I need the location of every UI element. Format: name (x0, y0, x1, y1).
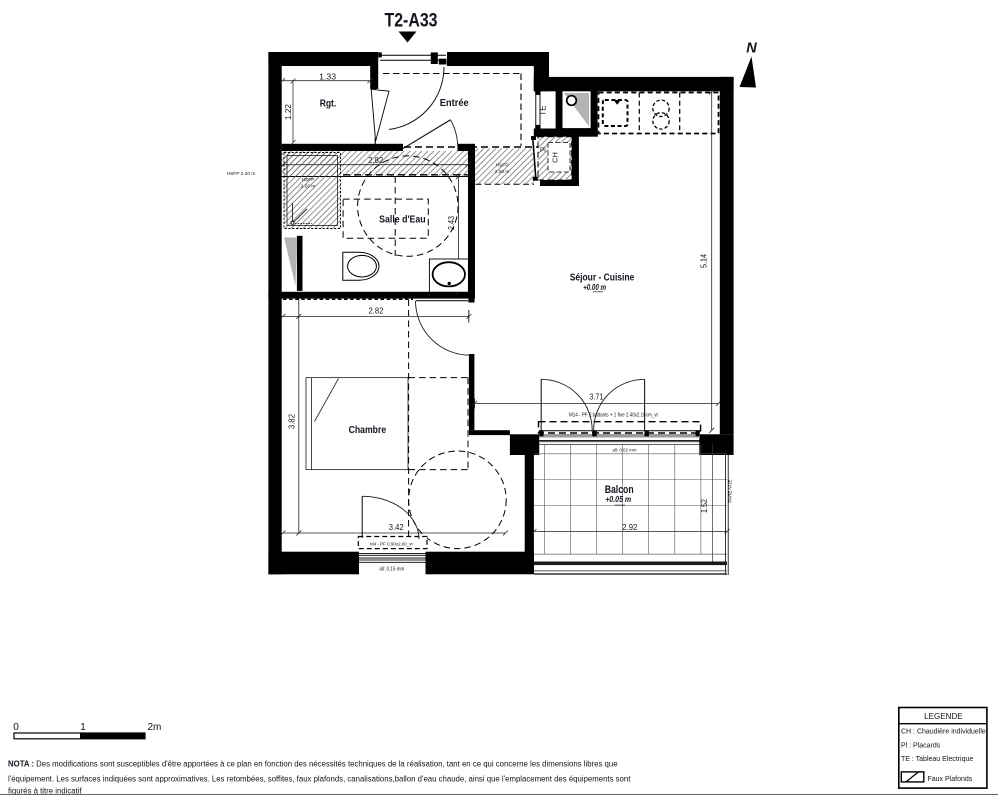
svg-text:LEGENDE: LEGENDE (924, 711, 963, 721)
svg-text:1.33: 1.33 (319, 72, 336, 82)
svg-text:2.82: 2.82 (368, 155, 383, 165)
svg-text:2.20 m: 2.20 m (301, 184, 316, 190)
svg-text:Rgt.: Rgt. (320, 99, 337, 110)
svg-text:5.14: 5.14 (699, 254, 709, 268)
svg-text:TE: TE (539, 105, 548, 116)
svg-text:2.20 m: 2.20 m (495, 169, 510, 175)
svg-text:CH: CH (551, 152, 560, 163)
svg-text:M4 - PF 0.90x2.00_vr: M4 - PF 0.90x2.00_vr (370, 542, 413, 547)
svg-text:3.71: 3.71 (589, 392, 603, 402)
svg-text:HSFP 2.20 m: HSFP 2.20 m (227, 171, 256, 177)
svg-text:0: 0 (13, 722, 19, 733)
svg-text:2.82: 2.82 (369, 306, 384, 316)
svg-text:Faux Plafonds: Faux Plafonds (928, 776, 973, 783)
svg-text:1.22: 1.22 (283, 104, 293, 120)
svg-text:HSFP: HSFP (302, 177, 315, 183)
svg-text:PARE-VUE: PARE-VUE (728, 479, 733, 502)
svg-text:1.52: 1.52 (699, 499, 709, 513)
svg-text:N: N (746, 41, 757, 57)
svg-text:3.82: 3.82 (287, 414, 297, 429)
svg-text:1: 1 (80, 722, 86, 733)
svg-text:all: 0.15 mm: all: 0.15 mm (379, 567, 404, 573)
svg-text:Pl: Pl (540, 147, 546, 154)
svg-text:3.42: 3.42 (389, 522, 404, 532)
svg-text:all: 0.02 mm: all: 0.02 mm (613, 447, 637, 452)
svg-text:CH : Chaudière individuelle: CH : Chaudière individuelle (901, 729, 986, 736)
svg-text:2m: 2m (148, 722, 162, 733)
svg-text:2.92: 2.92 (622, 522, 637, 532)
svg-text:HSFP: HSFP (496, 163, 509, 169)
svg-text:Chambre: Chambre (349, 424, 387, 436)
svg-text:Entrée: Entrée (440, 98, 469, 109)
svg-text:Pl : Placards: Pl : Placards (901, 742, 941, 749)
svg-text:TE : Tableau Electrique: TE : Tableau Electrique (901, 756, 973, 763)
svg-text:T2-A33: T2-A33 (385, 10, 438, 32)
svg-text:2.43: 2.43 (447, 216, 456, 230)
svg-text:NOTA : Des modifications sont: NOTA : Des modifications sont susceptibl… (8, 760, 618, 769)
svg-text:l'équipement. Les surfaces ind: l'équipement. Les surfaces indiquées son… (8, 775, 631, 784)
svg-text:M14 - PF 2 battants + 1 fixe 2: M14 - PF 2 battants + 1 fixe 2.40x2.15cm… (569, 413, 658, 419)
svg-text:Salle d'Eau: Salle d'Eau (379, 214, 426, 226)
svg-text:+0.05 m: +0.05 m (605, 494, 631, 504)
svg-text:+0.00 m: +0.00 m (583, 282, 606, 292)
